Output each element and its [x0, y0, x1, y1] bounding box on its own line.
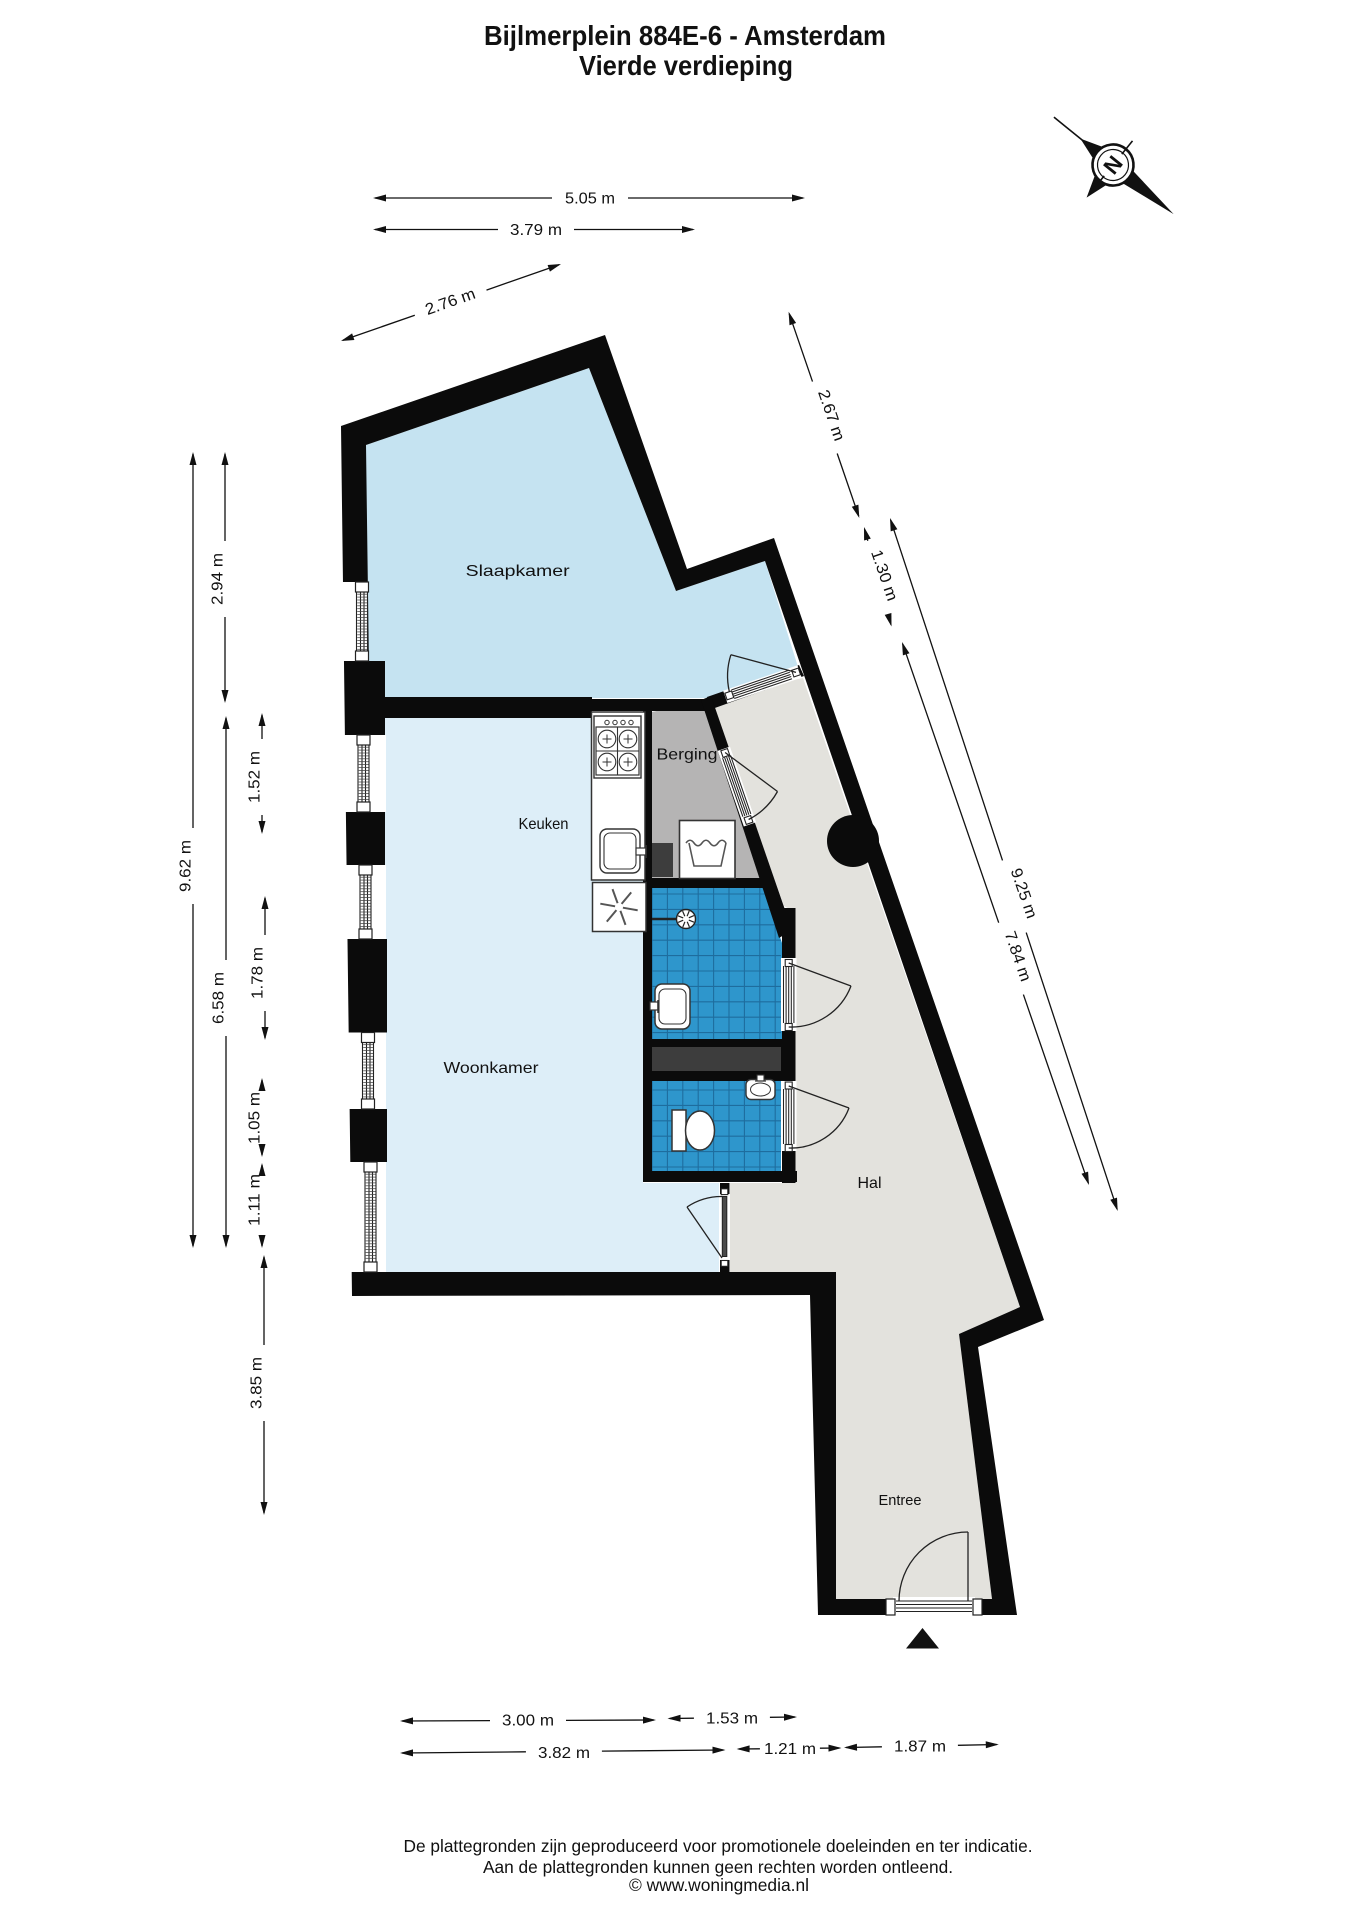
svg-text:3.82 m: 3.82 m — [538, 1745, 590, 1762]
svg-text:6.58 m: 6.58 m — [211, 972, 228, 1024]
svg-text:© www.woningmedia.nl: © www.woningmedia.nl — [629, 1875, 809, 1895]
svg-text:Aan de plattegronden kunnen ge: Aan de plattegronden kunnen geen rechten… — [483, 1857, 953, 1877]
svg-text:Entree: Entree — [879, 1492, 922, 1509]
svg-text:1.11 m: 1.11 m — [247, 1174, 264, 1226]
svg-text:1.87 m: 1.87 m — [894, 1739, 946, 1756]
svg-text:3.85 m: 3.85 m — [249, 1357, 266, 1409]
svg-text:5.05 m: 5.05 m — [565, 191, 615, 208]
svg-text:Woonkamer: Woonkamer — [444, 1060, 540, 1077]
svg-text:3.00 m: 3.00 m — [502, 1713, 554, 1730]
svg-text:1.21 m: 1.21 m — [764, 1741, 816, 1758]
svg-text:1.05 m: 1.05 m — [247, 1092, 264, 1144]
svg-text:1.53 m: 1.53 m — [706, 1711, 758, 1728]
svg-text:1.78 m: 1.78 m — [250, 947, 267, 999]
svg-text:1.52 m: 1.52 m — [247, 751, 264, 803]
svg-text:2.94 m: 2.94 m — [210, 553, 227, 605]
svg-text:De plattegronden zijn geproduc: De plattegronden zijn geproduceerd voor … — [404, 1836, 1033, 1856]
svg-text:Berging: Berging — [657, 747, 718, 764]
svg-text:Hal: Hal — [858, 1175, 882, 1192]
svg-text:9.62 m: 9.62 m — [178, 840, 195, 892]
svg-text:3.79 m: 3.79 m — [510, 222, 562, 239]
svg-text:Slaapkamer: Slaapkamer — [466, 563, 571, 580]
svg-text:Bijlmerplein 884E-6 - Amsterda: Bijlmerplein 884E-6 - Amsterdam — [484, 20, 886, 51]
svg-text:Keuken: Keuken — [519, 816, 569, 833]
svg-text:Vierde verdieping: Vierde verdieping — [579, 50, 793, 81]
